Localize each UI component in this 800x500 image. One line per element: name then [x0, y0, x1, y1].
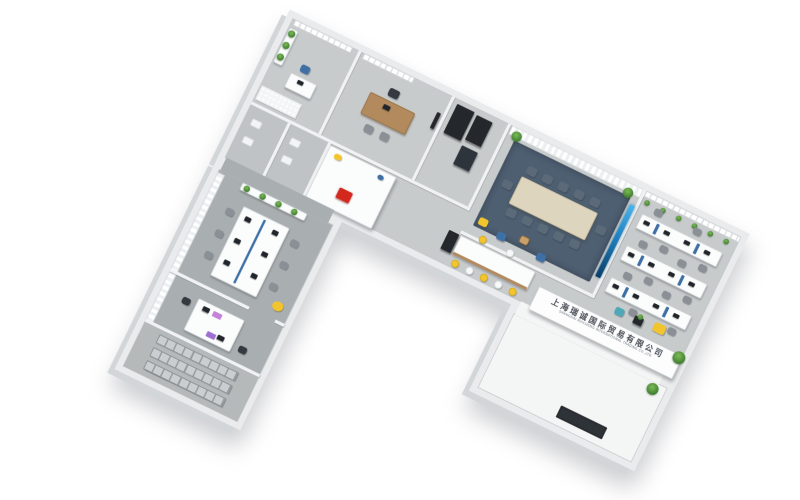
office-chair [676, 258, 687, 268]
sill-plant [707, 230, 714, 237]
render-canvas: 上海瑞诚国际贸易有限公司 SHANGHAI RUICHENG INTERNATI… [0, 0, 800, 500]
office-chair [181, 296, 192, 306]
office-chair [682, 295, 693, 305]
office-chair [697, 263, 708, 273]
bar-stool [493, 279, 504, 290]
office-chair [237, 345, 248, 355]
office-chair [224, 207, 235, 217]
office-chair [692, 227, 703, 237]
office-floorplan: 上海瑞诚国际贸易有限公司 SHANGHAI RUICHENG INTERNATI… [100, 3, 750, 500]
window-office-a [293, 19, 353, 53]
manager-chair [387, 87, 401, 100]
office-chair [658, 244, 669, 254]
bar-stool [478, 272, 489, 283]
window-manager-office [362, 53, 415, 83]
wall-team-office-door [274, 320, 285, 327]
sill-plant [675, 215, 682, 222]
refrigerator [453, 145, 478, 171]
office-chair [666, 326, 677, 336]
bar-stool [450, 258, 461, 269]
office-chair [637, 239, 648, 249]
office-chair [643, 276, 654, 286]
entrance-mat [556, 405, 608, 439]
office-chair [268, 282, 279, 292]
sill-plant [722, 238, 729, 245]
office-chair [299, 64, 311, 75]
desk-office-a [284, 72, 317, 99]
office-chair [622, 271, 633, 281]
guest-chair [363, 123, 375, 134]
bar-stool [507, 286, 518, 297]
bar-stool [464, 265, 475, 276]
wall-office-b-pantry [412, 96, 456, 181]
beanbag [271, 299, 285, 313]
lounge-chair [613, 306, 625, 317]
guest-chair [378, 131, 390, 142]
wall-office-a-b [318, 50, 362, 135]
office-chair [278, 260, 289, 270]
sill-plant [643, 199, 650, 206]
office-chair [289, 238, 300, 248]
office-chair [661, 290, 672, 300]
office-chair [203, 250, 214, 260]
office-chair [214, 228, 225, 238]
lounge-armchair [651, 321, 667, 335]
